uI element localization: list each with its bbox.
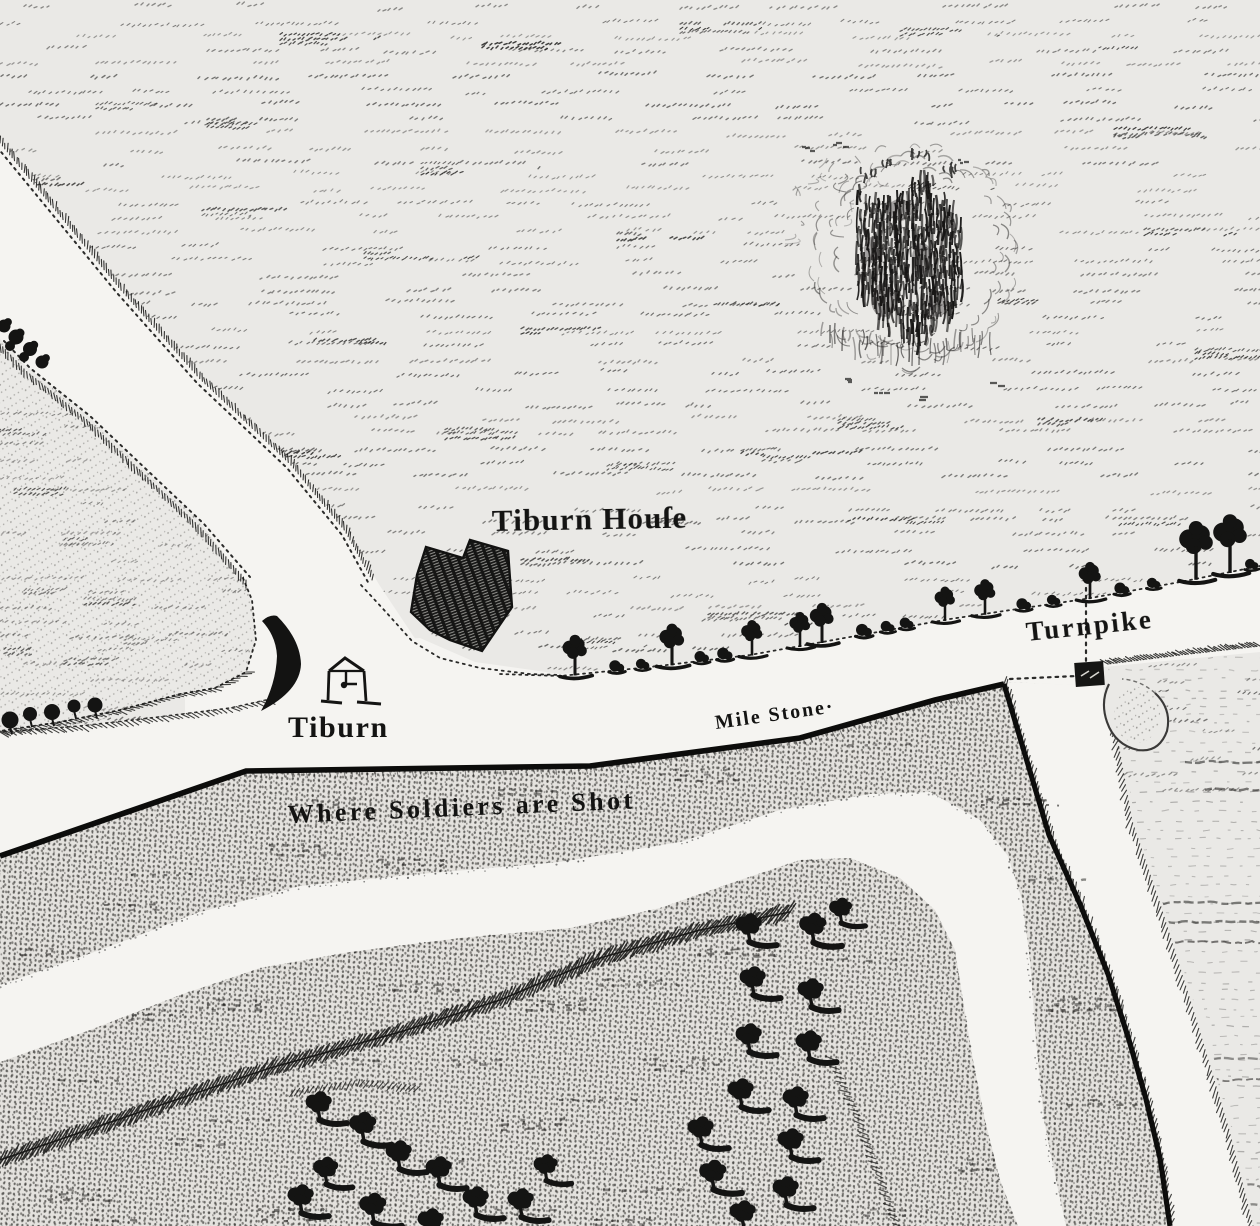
svg-text:Tiburn: Tiburn	[288, 711, 389, 744]
svg-text:Tiburn Houſe: Tiburn Houſe	[492, 500, 688, 538]
